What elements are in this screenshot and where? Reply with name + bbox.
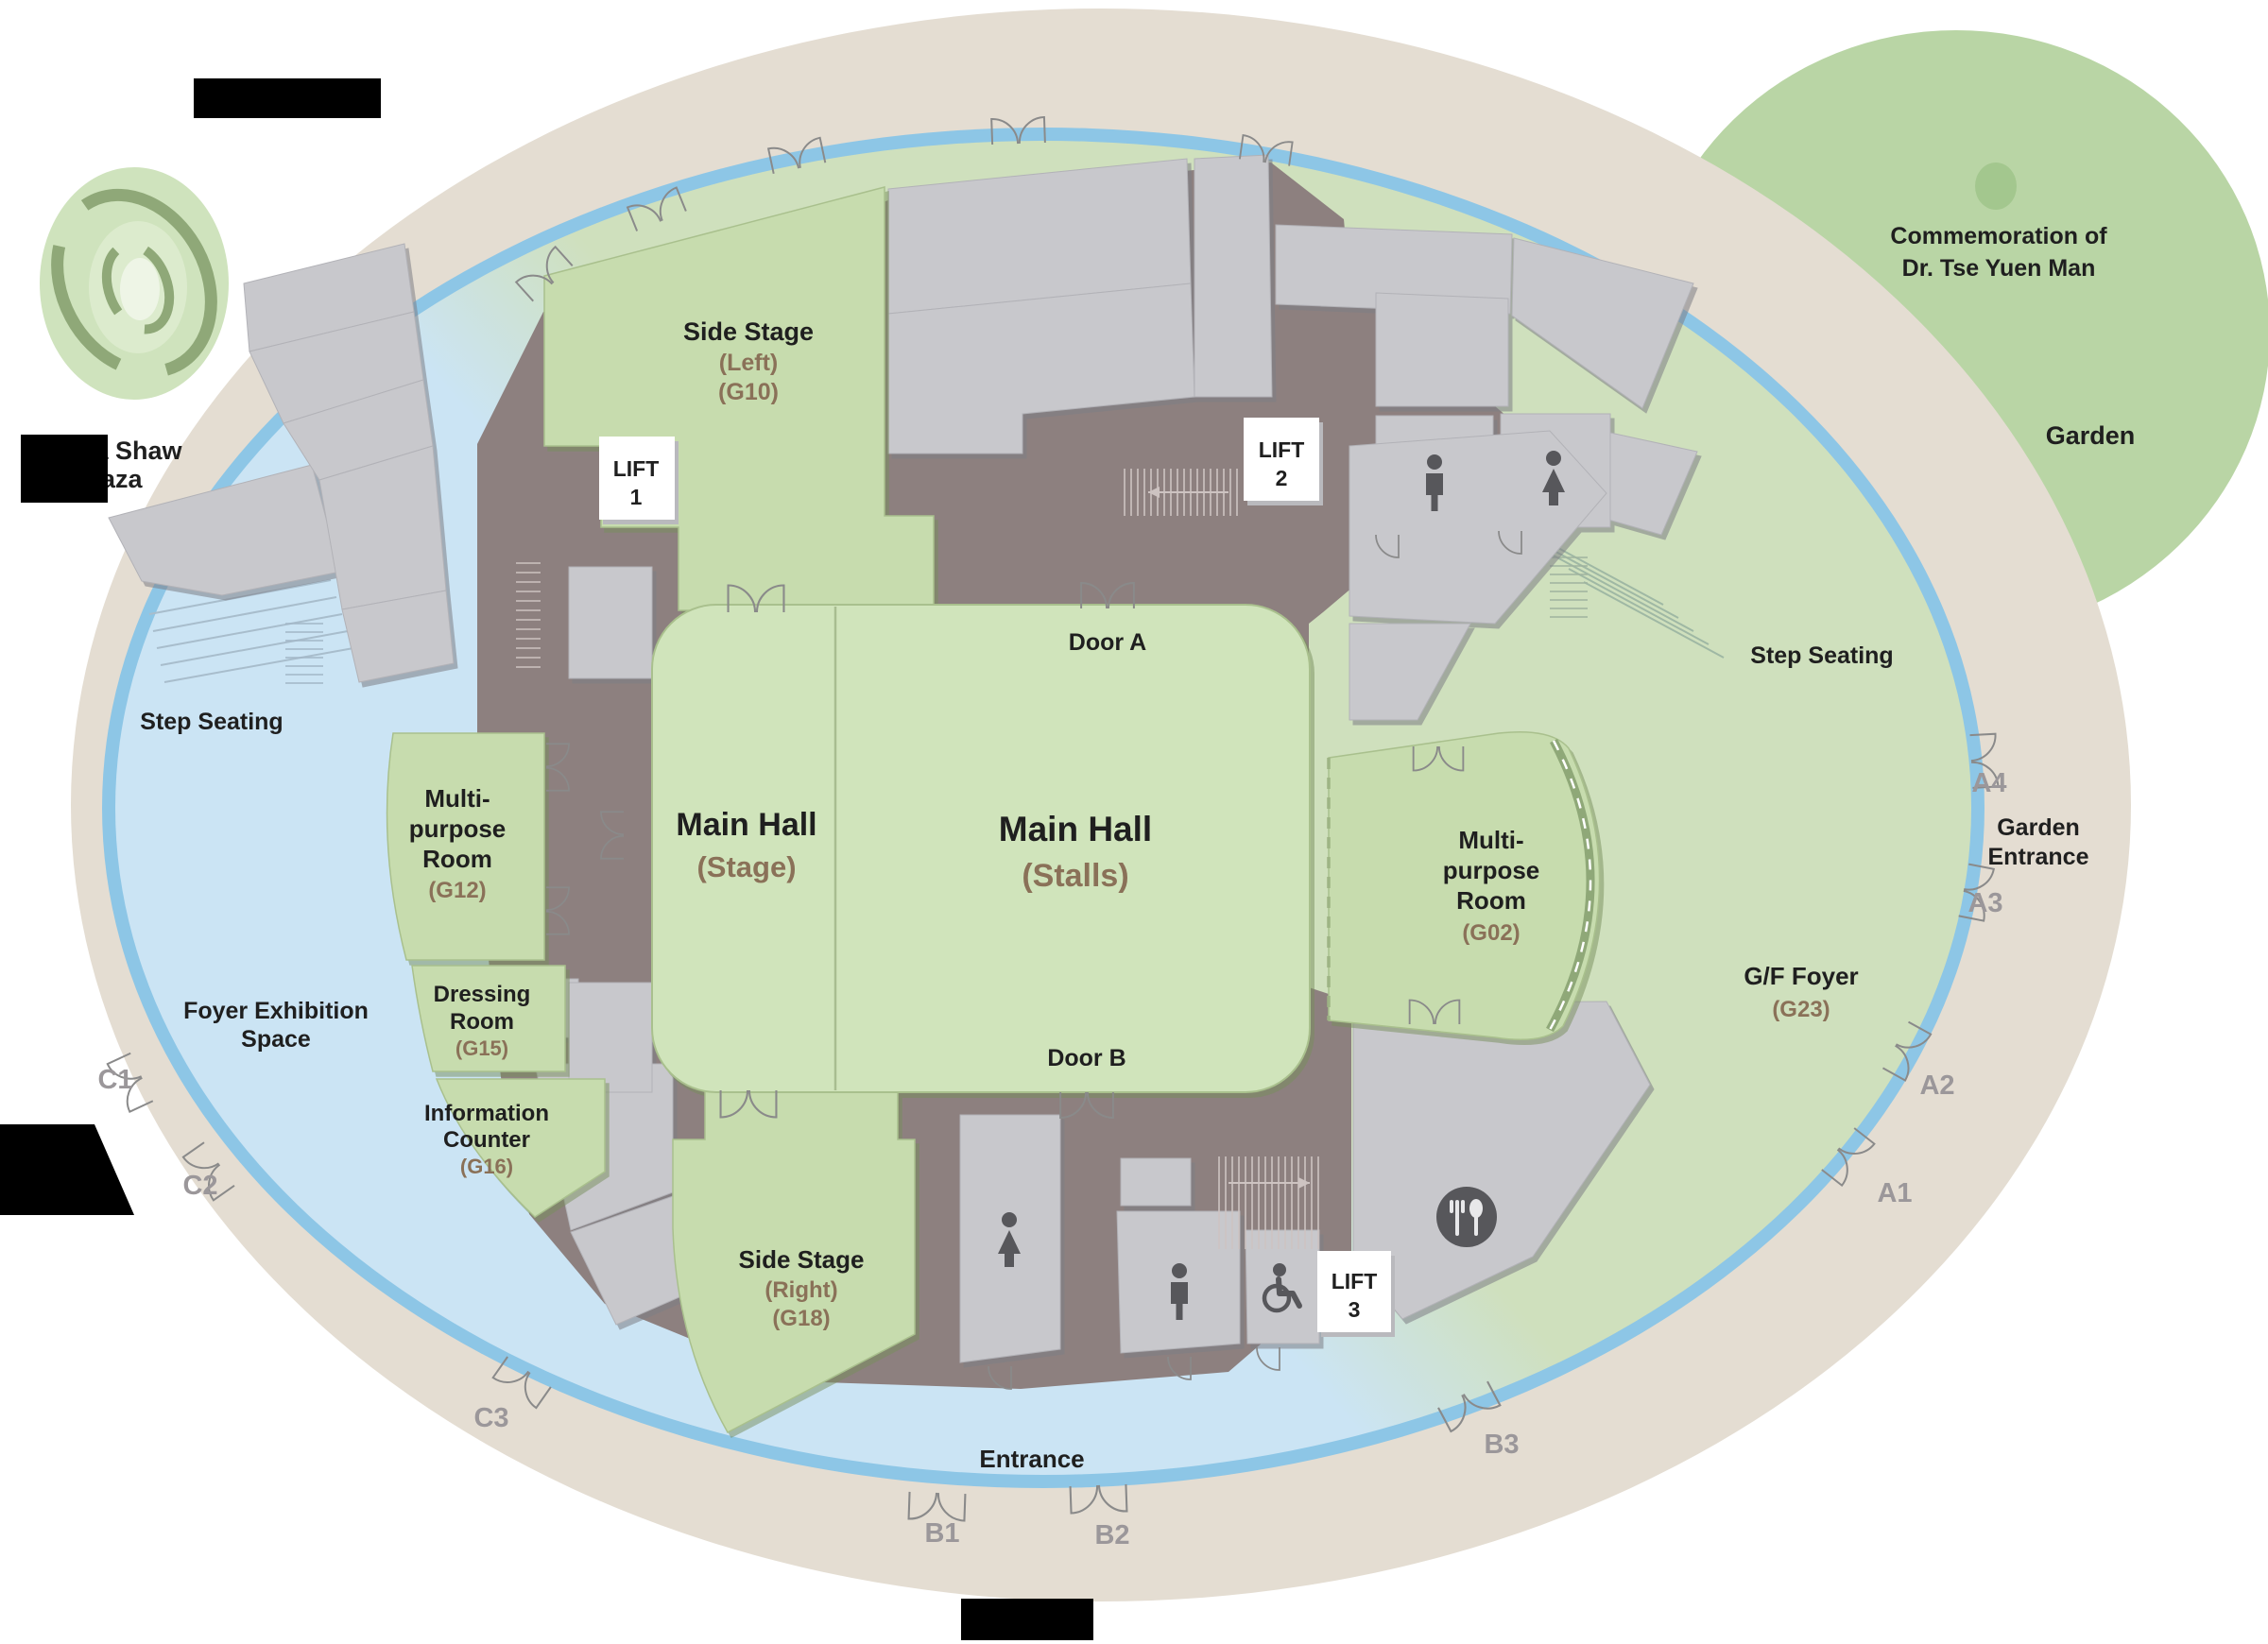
room-gray xyxy=(1121,1158,1191,1206)
stage-wall xyxy=(569,983,652,1092)
redaction-box xyxy=(194,78,381,118)
room-main-hall xyxy=(652,605,1310,1092)
redaction-box xyxy=(0,1124,134,1215)
plaza-spiral xyxy=(27,167,241,400)
lift-2-box xyxy=(1244,418,1319,501)
lift-3-box xyxy=(1317,1251,1391,1332)
restaurant-icon xyxy=(1436,1187,1497,1247)
redaction-box xyxy=(961,1599,1093,1640)
room-gray xyxy=(1376,293,1508,406)
floor-plan-svg: a Shaw Plaza Commemoration of Dr. Tse Yu… xyxy=(0,0,2268,1644)
room-dressing-g15 xyxy=(412,966,565,1071)
room-multipurpose-g12 xyxy=(387,733,544,960)
room-gray xyxy=(1194,155,1272,397)
tree-icon xyxy=(1975,163,2017,210)
lift-1-box xyxy=(599,437,675,520)
floor-plan-map: a Shaw Plaza Commemoration of Dr. Tse Yu… xyxy=(0,0,2268,1644)
stage-wall xyxy=(569,567,652,678)
redaction-box xyxy=(21,435,108,503)
room-multipurpose-g02 xyxy=(1329,732,1600,1040)
exit-c1-label: C1 xyxy=(97,1065,132,1095)
